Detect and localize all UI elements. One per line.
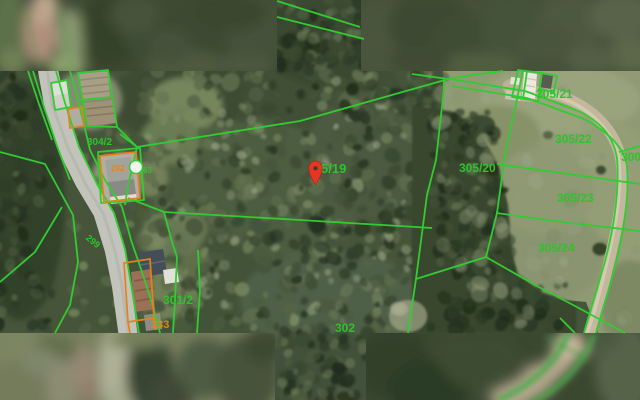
svg-text:305/20: 305/20 bbox=[459, 161, 496, 175]
svg-text:304/2: 304/2 bbox=[87, 137, 112, 148]
svg-text:233: 233 bbox=[151, 319, 169, 331]
svg-text:5/19: 5/19 bbox=[321, 161, 346, 176]
svg-text:305/22: 305/22 bbox=[555, 132, 592, 146]
svg-text:305/24: 305/24 bbox=[538, 241, 575, 255]
svg-text:63: 63 bbox=[143, 166, 152, 175]
svg-text:292: 292 bbox=[111, 164, 125, 173]
svg-text:305/21: 305/21 bbox=[536, 87, 573, 101]
svg-text:305/23: 305/23 bbox=[557, 191, 594, 205]
svg-text:302: 302 bbox=[335, 321, 355, 335]
svg-text:301/2: 301/2 bbox=[163, 293, 193, 307]
svg-text:300: 300 bbox=[621, 150, 640, 164]
